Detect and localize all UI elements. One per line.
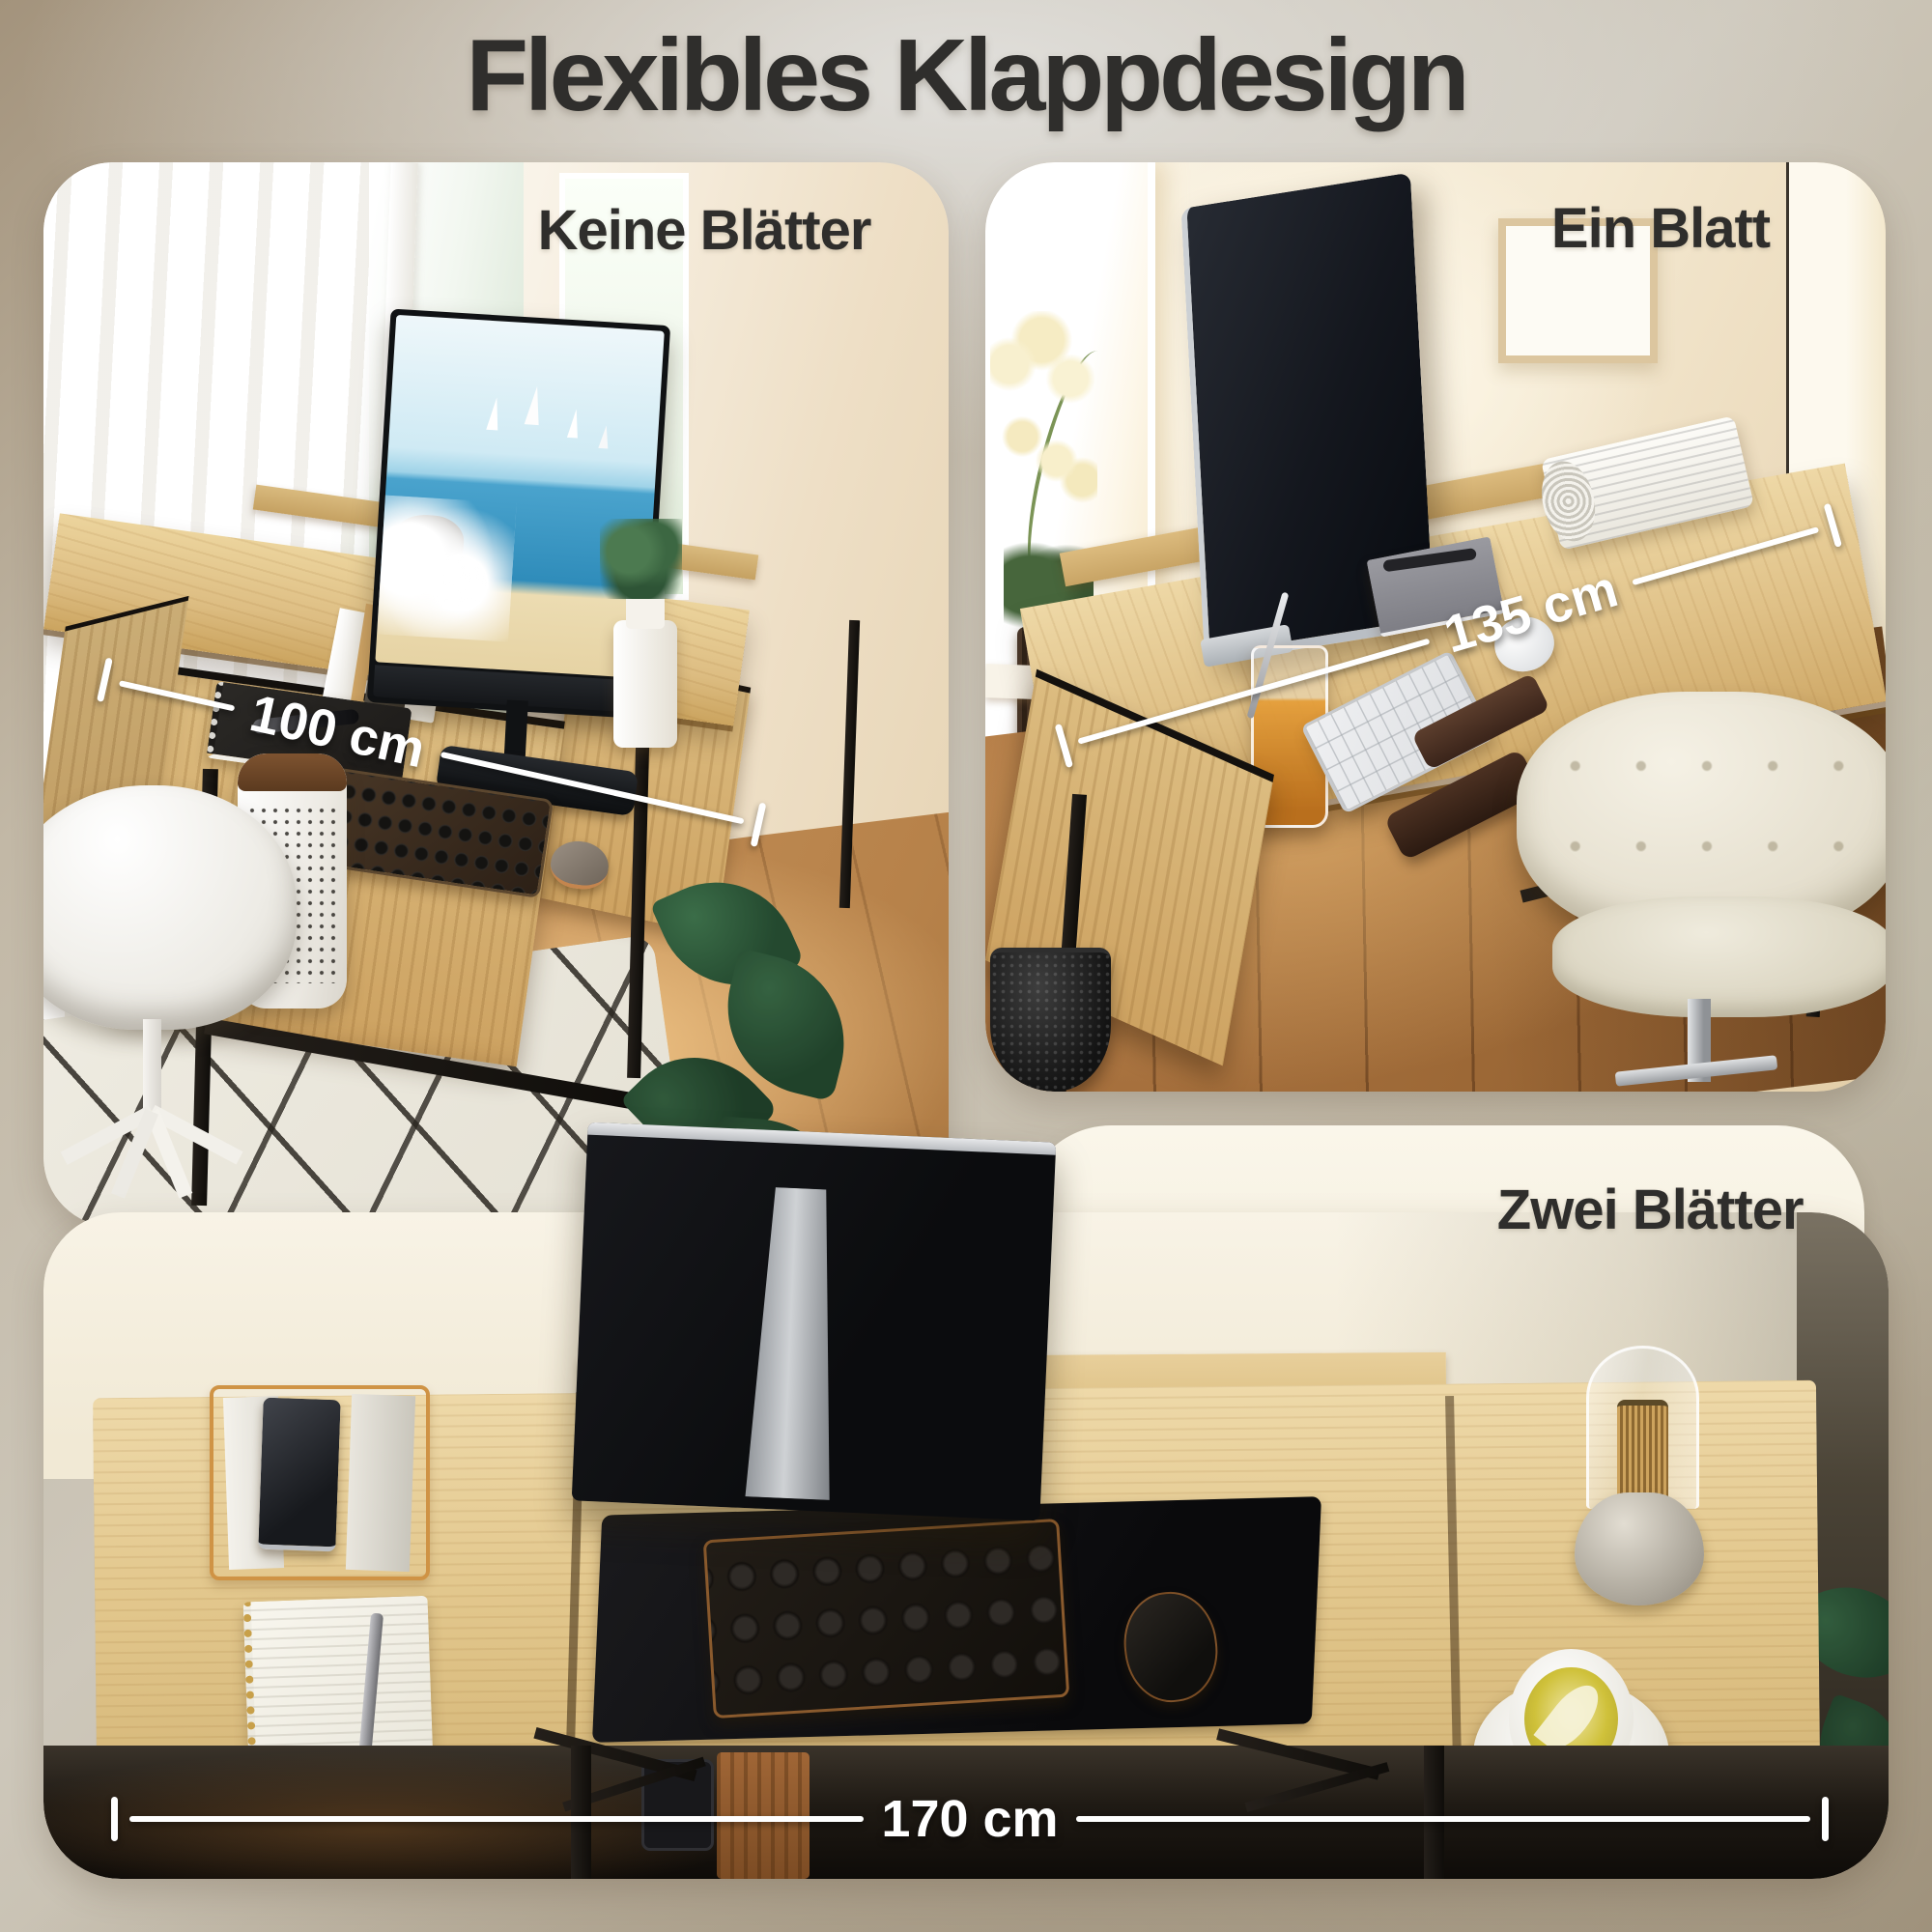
dimension-text: 170 cm <box>875 1789 1064 1849</box>
beach-wave-foam <box>375 495 517 642</box>
plant-pedestal <box>613 620 677 748</box>
label-no-leaves: Keine Blätter <box>478 198 931 263</box>
orchid-flowers <box>990 311 1098 553</box>
office-chair-stem <box>143 1019 161 1110</box>
phone-on-stand <box>259 1398 342 1552</box>
glass-dome <box>1586 1346 1699 1509</box>
page-title: Flexibles Klappdesign <box>0 17 1932 134</box>
retro-keyboard <box>702 1519 1069 1719</box>
infographic-canvas: Flexibles Klappdesign <box>0 0 1932 1932</box>
sailboat-icon <box>598 425 609 449</box>
office-chair-seat <box>43 785 297 1030</box>
organizer-book <box>346 1394 415 1572</box>
potted-plant <box>600 519 681 599</box>
monitor-breakout <box>572 1122 1057 1521</box>
brass-insert <box>1617 1400 1668 1505</box>
dimension-line <box>129 1816 864 1822</box>
dimension-line <box>119 680 235 711</box>
label-two-leaves: Zwei Blätter <box>1461 1178 1839 1242</box>
dimension-tick <box>111 1797 118 1841</box>
dimension-tick <box>1822 1797 1829 1841</box>
tufted-chair-seat <box>1552 896 1886 1017</box>
sailboat-icon <box>566 409 579 439</box>
sailboat-icon <box>525 385 541 425</box>
sailboat-icon <box>486 397 499 431</box>
mesh-waste-bin <box>990 948 1112 1092</box>
monitor-stand-column <box>745 1186 842 1500</box>
dimension-line <box>1076 1816 1810 1822</box>
dimension-170cm: 170 cm <box>111 1789 1829 1849</box>
dome-metal-base <box>1575 1492 1704 1605</box>
label-one-leaf: Ein Blatt <box>1454 196 1868 261</box>
